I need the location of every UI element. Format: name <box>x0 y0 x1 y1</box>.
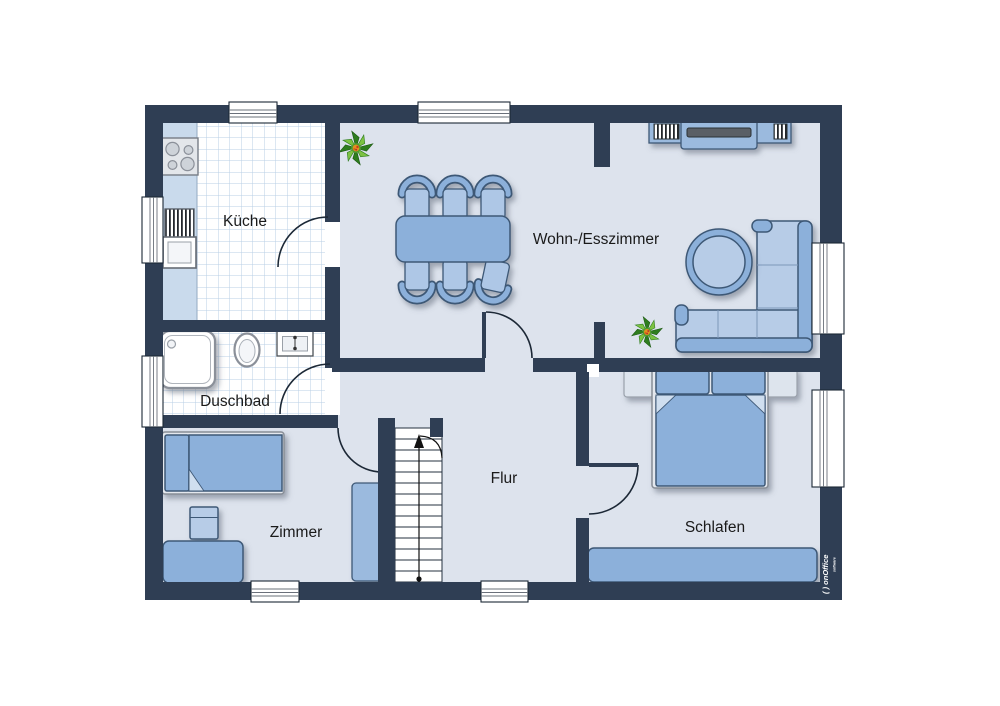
vendor-logo: ( ) onOffice <box>821 555 830 594</box>
wall-stair-right-stub <box>430 418 443 437</box>
floorplan-canvas: Küche Wohn-/Esszimmer Duschbad Zimmer Fl… <box>0 0 1000 706</box>
window-schlafen-right <box>812 390 844 487</box>
wall-flur-wohnzimmer <box>332 358 485 372</box>
room-label-kueche: Küche <box>223 213 267 230</box>
window-zimmer-bottom <box>251 581 299 602</box>
vendor-logo-subtext: software <box>833 557 837 572</box>
toilet-icon <box>235 334 260 367</box>
fridge-icon <box>163 237 196 268</box>
wall-kueche-right-lower <box>325 267 340 368</box>
room-label-duschbad: Duschbad <box>200 393 270 410</box>
shower-icon <box>160 331 215 388</box>
window-duschbad-left <box>142 356 163 427</box>
window-wohnzimmer-right <box>812 243 844 334</box>
speaker-left-icon <box>654 124 679 139</box>
door-leaf-wohnzimmer <box>482 312 486 358</box>
speaker-right-icon <box>774 124 787 139</box>
wall-kueche-duschbad <box>163 320 340 332</box>
window-wohnzimmer-top <box>418 102 510 123</box>
blanket <box>656 395 765 486</box>
duschbad-door-gap <box>325 368 340 415</box>
dining-set <box>396 179 513 304</box>
wall-divider-top-stub <box>594 123 610 167</box>
wall-schlafen-top <box>533 358 842 372</box>
nightstand-right <box>766 368 797 397</box>
room-label-zimmer: Zimmer <box>270 524 323 541</box>
desk <box>163 541 243 583</box>
door-leaf-zimmer <box>378 428 382 474</box>
pillow-right <box>712 370 765 394</box>
dining-table <box>396 216 510 262</box>
wall-flur-schlafen-upper <box>576 372 589 466</box>
window-kueche-top <box>229 102 277 123</box>
window-kueche-left <box>142 197 163 263</box>
sink-icon <box>277 331 313 356</box>
coffee-table <box>686 229 752 295</box>
nightstand-left <box>624 368 653 397</box>
stove-icon <box>162 138 198 175</box>
room-label-flur: Flur <box>491 470 518 487</box>
pillow-left <box>656 370 709 394</box>
staircase <box>395 428 442 582</box>
tv-icon <box>687 128 751 137</box>
schlafen-wardrobe <box>588 548 817 582</box>
desk-chair <box>190 507 218 539</box>
door-leaf-schlafen <box>589 463 638 467</box>
wall-divider-bottom-stub <box>594 322 605 360</box>
wall-kueche-right-upper <box>325 123 340 222</box>
room-label-wohn-esszimmer: Wohn-/Esszimmer <box>533 231 659 248</box>
floorplan-page: Küche Wohn-/Esszimmer Duschbad Zimmer Fl… <box>0 0 1000 706</box>
single-bed <box>162 432 284 494</box>
wall-outer-left <box>145 105 163 600</box>
dishwasher-icon <box>165 209 194 238</box>
wall-flur-schlafen-lower <box>576 518 589 582</box>
window-flur-bottom <box>481 581 528 602</box>
wall-outer-right <box>820 105 842 600</box>
wall-duschbad-zimmer <box>145 415 338 428</box>
kueche-door-gap <box>325 222 340 267</box>
room-label-schlafen: Schlafen <box>685 519 745 536</box>
